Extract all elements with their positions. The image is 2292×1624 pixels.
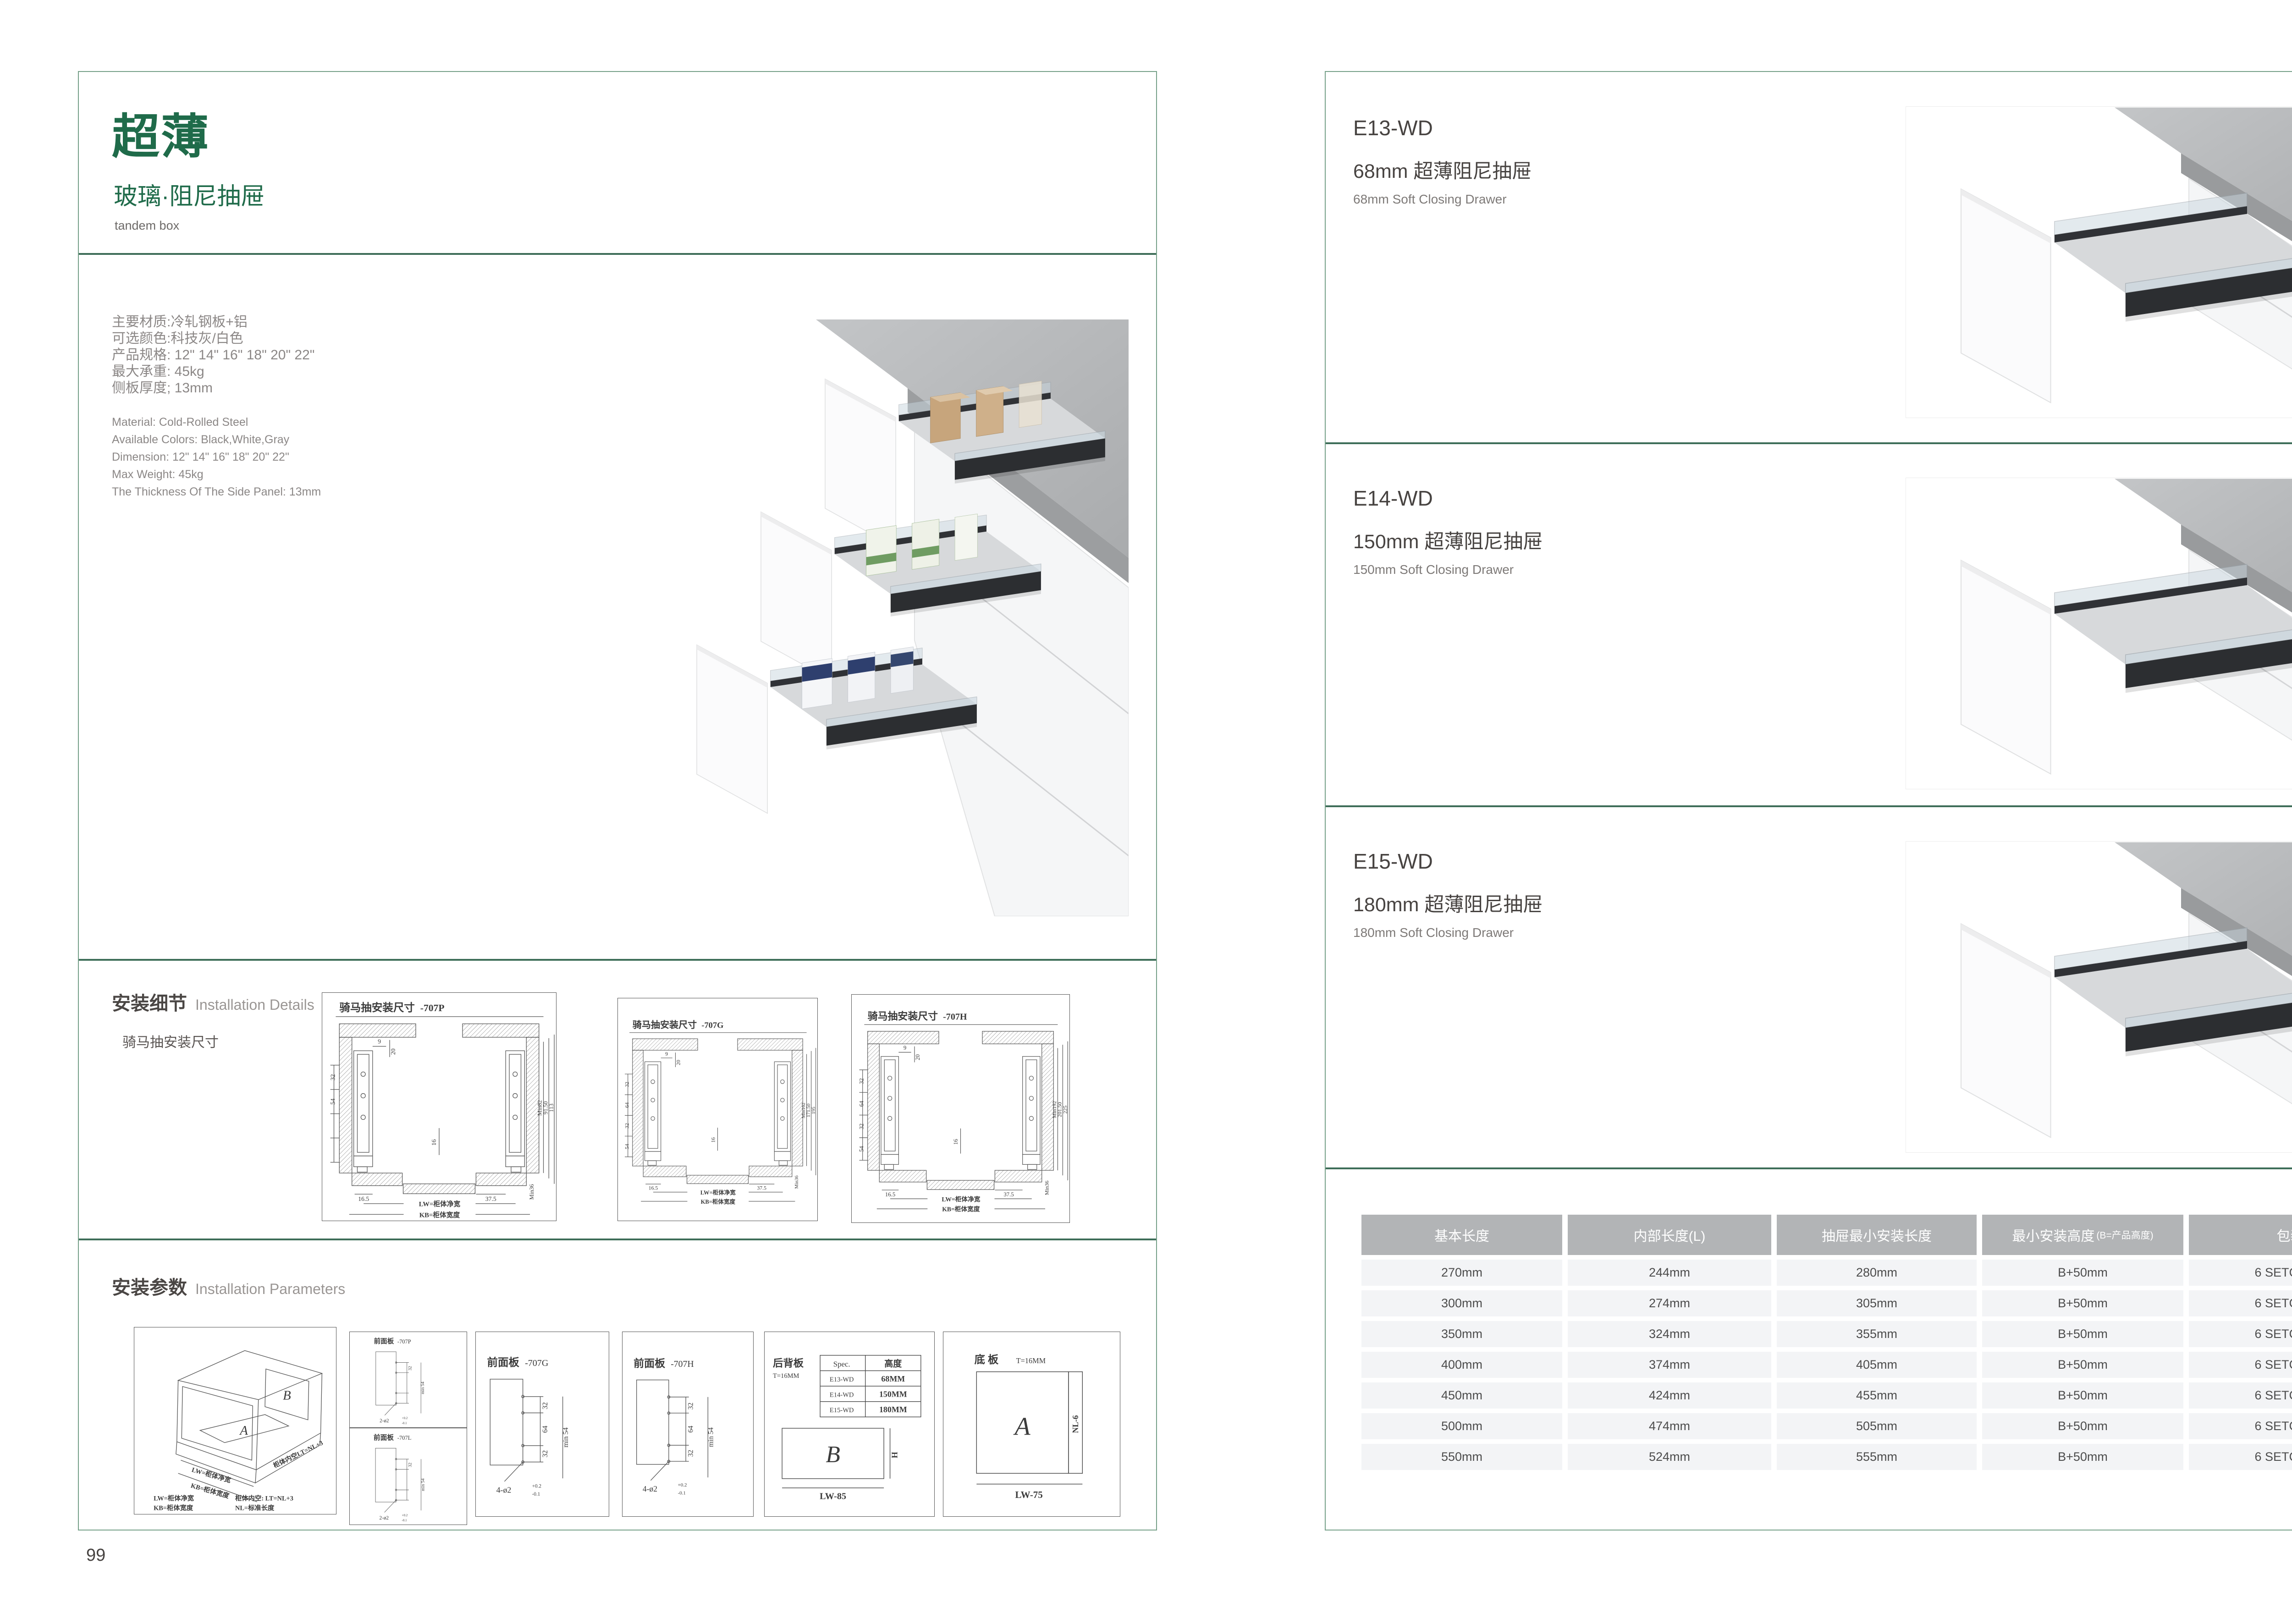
table-cell: B+50mm [1982, 1260, 2183, 1286]
specs-en: Material: Cold-Rolled Steel Available Co… [112, 413, 321, 501]
dim-label: 225 [1062, 1106, 1069, 1114]
legend-item: LW=柜体净宽 [154, 1494, 194, 1503]
install-drawing-707g: 骑马抽安装尺寸 -707G 9 20 32 64 32 54 16 Min162… [617, 998, 818, 1221]
product-name-zh-e13: 68mm 超薄阻尼抽屉 [1353, 155, 1532, 184]
dim-label: KB=柜体宽度 [701, 1198, 736, 1205]
dim-label: 64 [859, 1101, 865, 1107]
table-cell: B+50mm [1982, 1321, 2183, 1347]
panel-model: -707L [397, 1435, 412, 1441]
spec-line: Max Weight: 45kg [112, 466, 321, 483]
table-cell: 474mm [1568, 1413, 1771, 1439]
page-number-left: 99 [86, 1546, 105, 1565]
dim-label: 16 [430, 1139, 437, 1145]
divider [1326, 442, 2292, 444]
dim-label: 32 [329, 1074, 336, 1080]
front-panel-drawing-707g: 前面板 -707G 32 64 32 min 54 4-ø2 +0.2 -0.1 [475, 1332, 609, 1517]
col-header-label: 最小安装高度 [2012, 1225, 2094, 1245]
dim-label: 柜体内空LT=NL+3 [272, 1438, 324, 1470]
dim-label: 37.5 [1003, 1191, 1014, 1198]
table-cell: 6 SETC/TNB [2189, 1290, 2292, 1316]
height-cell: 150MM [879, 1390, 907, 1399]
product-photo-e15 [1906, 841, 2292, 1153]
spec-line: 主要材质:冷轧钢板+铝 [112, 314, 314, 330]
dim-label: 32 [541, 1402, 549, 1409]
col-header-label: 抽屉最小安装长度 [1822, 1225, 1932, 1245]
dim-label: 54 [624, 1144, 630, 1149]
product-name-zh-e14: 150mm 超薄阻尼抽屉 [1353, 526, 1543, 554]
front-panel-drawing-707h: 前面板 -707H 32 64 32 min 54 4-ø2 +0.2 -0.1 [622, 1332, 754, 1517]
table-cell: 280mm [1777, 1260, 1977, 1286]
dim-label: 16.5 [358, 1195, 369, 1202]
dim-label: 16 [953, 1139, 959, 1145]
dim-label: min 54 [562, 1427, 570, 1448]
panel-title: 前面板 [634, 1357, 666, 1369]
col-header-min-install-length: 抽屉最小安装长度 [1777, 1215, 1977, 1255]
dim-label: KB=柜体宽度 [190, 1481, 230, 1500]
table-cell: 6 SETC/TNB [2189, 1260, 2292, 1286]
side-dim-label: NL-6 [1071, 1415, 1080, 1433]
spec-line: 产品规格: 12" 14" 16" 18" 20" 22" [112, 347, 314, 363]
installation-parameters-title-zh: 安装参数 [112, 1277, 187, 1298]
product-title: 超薄 [112, 113, 210, 161]
product-name-zh-e15: 180mm 超薄阻尼抽屉 [1353, 889, 1543, 917]
table-cell: B+50mm [1982, 1352, 2183, 1378]
installation-parameters-title: 安装参数Installation Parameters [112, 1272, 345, 1299]
width-dim-label: LW-85 [820, 1492, 846, 1502]
dim-label: 54 [329, 1098, 336, 1105]
tolerance-bottom: -0.1 [532, 1492, 540, 1497]
legend-item: NL=标准长度 [235, 1504, 275, 1512]
dim-label: KB=柜体宽度 [419, 1211, 460, 1219]
dim-label: min 54 [421, 1478, 426, 1491]
col-header-label: 内部长度(L) [1634, 1225, 1706, 1245]
panel-title: 底 板 [975, 1353, 999, 1366]
product-name-en-e15: 180mm Soft Closing Drawer [1353, 925, 1514, 940]
panel-title: 前面板 [487, 1356, 520, 1369]
dim-label: 20 [676, 1060, 682, 1065]
table-cell: 555mm [1777, 1444, 1977, 1470]
table-cell: 274mm [1568, 1290, 1771, 1316]
table-cell: 324mm [1568, 1321, 1771, 1347]
install-drawing-707h: 骑马抽安装尺寸 -707H 9 20 32 64 32 54 16 Min192… [851, 994, 1070, 1223]
divider [1326, 805, 2292, 807]
spec-cell: E15-WD [830, 1407, 854, 1414]
panel-b-label: B [283, 1388, 291, 1403]
col-header-packing: 包装 [2189, 1215, 2292, 1255]
product-photo-main [541, 319, 1129, 916]
height-dim-label: H [890, 1452, 899, 1458]
bottom-panel-drawing: 底 板 T=16MM A NL-6 LW-75 [943, 1332, 1120, 1517]
dim-label: LW=柜体净宽 [942, 1195, 980, 1203]
page-left: 超薄 玻璃·阻尼抽屉 tandem box 主要材质:冷轧钢板+铝 可选颜色:科… [78, 71, 1157, 1530]
col-header-label: 包装 [2277, 1225, 2292, 1245]
table-cell: 270mm [1361, 1260, 1562, 1286]
panel-thickness: T=16MM [1016, 1356, 1046, 1365]
spec-col-header: Spec. [833, 1360, 850, 1368]
product-model-e15: E15-WD [1353, 849, 1433, 874]
cabinet-iso-drawing: A B LW=柜体净宽 KB=柜体宽度 柜体内空LT=NL+3 LW=柜体净宽 … [134, 1327, 336, 1514]
dim-label: 9 [904, 1045, 906, 1051]
spec-line: Available Colors: Black,White,Gray [112, 431, 321, 448]
tolerance-bottom: -0.1 [402, 1519, 408, 1522]
dim-label: LW=柜体净宽 [700, 1189, 736, 1196]
table-cell: 455mm [1777, 1382, 1977, 1409]
dim-label: 37.5 [485, 1195, 496, 1202]
spec-line: The Thickness Of The Side Panel: 13mm [112, 483, 321, 501]
dim-label: 64 [687, 1426, 694, 1433]
dim-label: 20 [915, 1054, 921, 1060]
dim-label: 32 [408, 1366, 413, 1371]
width-dim-label: LW-75 [1015, 1489, 1043, 1500]
panel-b-label: B [826, 1442, 840, 1468]
table-cell: 500mm [1361, 1413, 1562, 1439]
table-cell: 244mm [1568, 1260, 1771, 1286]
dim-label: 20 [390, 1048, 397, 1055]
table-cell: B+50mm [1982, 1290, 2183, 1316]
spec-line: 最大承重: 45kg [112, 363, 314, 380]
drawing-title: 骑马抽安装尺寸 [339, 1001, 415, 1014]
panel-title: 后背板 [773, 1357, 804, 1369]
dim-label: 113 [548, 1104, 555, 1112]
installation-details-title-zh: 安装细节 [112, 993, 187, 1014]
dim-label: 64 [541, 1426, 549, 1433]
product-name-en-e13: 68mm Soft Closing Drawer [1353, 192, 1507, 207]
table-cell: 6 SETC/TNB [2189, 1352, 2292, 1378]
spec-table: 基本长度 内部长度(L) 抽屉最小安装长度 最小安装高度(B=产品高度) 包装 … [1361, 1215, 2292, 1470]
product-photo-e14 [1906, 478, 2292, 789]
panel-a-label: A [239, 1423, 248, 1438]
spec-line: Material: Cold-Rolled Steel [112, 413, 321, 431]
table-cell: 300mm [1361, 1290, 1562, 1316]
spec-cell: E14-WD [830, 1392, 854, 1399]
dim-label: 9 [665, 1051, 668, 1057]
dim-label: min 54 [707, 1427, 715, 1447]
dim-label: Min36 [794, 1175, 799, 1189]
panel-title: 前面板 [374, 1337, 394, 1345]
spec-line: 侧板厚度; 13mm [112, 380, 314, 396]
dim-label: 32 [541, 1450, 549, 1458]
table-cell: 524mm [1568, 1444, 1771, 1470]
divider [79, 959, 1156, 961]
col-header-min-install-height: 最小安装高度(B=产品高度) [1982, 1215, 2183, 1255]
table-cell: 355mm [1777, 1321, 1977, 1347]
front-panel-drawing-707p: 前面板 -707P 32 min 54 2-ø2 +0.2 -0.1 [349, 1332, 467, 1428]
tolerance-top: +0.2 [678, 1482, 687, 1488]
installation-details-subtitle: 骑马抽安装尺寸 [122, 1031, 219, 1051]
spec-cell: E13-WD [830, 1376, 854, 1383]
tolerance-bottom: -0.1 [678, 1490, 686, 1496]
table-cell: B+50mm [1982, 1444, 2183, 1470]
tolerance-top: +0.2 [402, 1417, 408, 1420]
dim-label: 54 [859, 1146, 865, 1152]
dim-label: 9 [378, 1038, 381, 1045]
drawing-title: 骑马抽安装尺寸 [868, 1010, 938, 1022]
page-right: E13-WD 68mm 超薄阻尼抽屉 68mm Soft Closing Dra… [1325, 71, 2292, 1530]
table-cell: 405mm [1777, 1352, 1977, 1378]
product-model-e14: E14-WD [1353, 486, 1433, 511]
dim-label: 37.5 [757, 1185, 766, 1191]
table-cell: 6 SETC/TNB [2189, 1413, 2292, 1439]
dim-label: 16.5 [885, 1191, 895, 1198]
dim-label: 32 [687, 1403, 694, 1409]
dim-label: 32 [859, 1123, 865, 1129]
drawing-model: -707G [701, 1021, 723, 1030]
divider [79, 1239, 1156, 1240]
divider [1326, 1167, 2292, 1169]
holes-label: 2-ø2 [380, 1418, 389, 1424]
panel-a-label: A [1013, 1412, 1031, 1441]
installation-details-title: 安装细节Installation Details [112, 988, 314, 1015]
table-cell: 550mm [1361, 1444, 1562, 1470]
height-cell: 68MM [881, 1374, 905, 1383]
dim-label: min 54 [420, 1382, 425, 1394]
dim-label: 16 [711, 1137, 716, 1143]
col-header-label: 基本长度 [1434, 1225, 1489, 1245]
product-model-e13: E13-WD [1353, 116, 1433, 140]
legend-item: 柜体内空: LT=NL+3 [235, 1494, 293, 1503]
panel-model: -707G [525, 1358, 548, 1368]
dim-label: 16.5 [649, 1185, 658, 1191]
product-tagline: tandem box [115, 220, 179, 232]
height-cell: 180MM [879, 1405, 907, 1414]
back-panel-drawing: 后背板 T=16MM Spec. 高度 E13-WD 68MM E14-WD 1… [764, 1332, 935, 1517]
height-col-header: 高度 [884, 1358, 902, 1369]
table-cell: B+50mm [1982, 1413, 2183, 1439]
spec-line: Dimension: 12" 14" 16" 18" 20" 22" [112, 448, 321, 466]
col-header-inner-length: 内部长度(L) [1568, 1215, 1771, 1255]
catalog-spread: 超薄 玻璃·阻尼抽屉 tandem box 主要材质:冷轧钢板+铝 可选颜色:科… [0, 0, 2292, 1624]
holes-label: 4-ø2 [643, 1484, 657, 1493]
panel-model: -707H [671, 1359, 694, 1369]
panel-model: -707P [397, 1338, 411, 1345]
table-cell: B+50mm [1982, 1382, 2183, 1409]
dim-label: LW=柜体净宽 [191, 1465, 232, 1485]
specs-zh: 主要材质:冷轧钢板+铝 可选颜色:科技灰/白色 产品规格: 12" 14" 16… [112, 314, 314, 396]
dim-label: 32 [624, 1082, 630, 1087]
legend-item: KB=柜体宽度 [154, 1504, 193, 1512]
tolerance-top: +0.2 [532, 1483, 541, 1489]
drawing-model: -707H [943, 1012, 967, 1022]
table-cell: 6 SETC/TNB [2189, 1321, 2292, 1347]
panel-thickness: T=16MM [773, 1372, 799, 1380]
col-header-note: (B=产品高度) [2096, 1228, 2153, 1242]
table-cell: 400mm [1361, 1352, 1562, 1378]
spec-line: 可选颜色:科技灰/白色 [112, 330, 314, 347]
drawing-title: 骑马抽安装尺寸 [633, 1019, 697, 1030]
table-cell: 305mm [1777, 1290, 1977, 1316]
install-drawing-707p: 骑马抽安装尺寸 -707P 9 20 32 54 16 Min82 91.50 … [322, 992, 556, 1221]
divider [79, 253, 1156, 255]
front-panel-drawing-707l: 前面板 -707L 32 min 54 2-ø2 +0.2 -0.1 [349, 1428, 467, 1525]
dim-label: Min36 [529, 1184, 535, 1200]
table-cell: 505mm [1777, 1413, 1977, 1439]
product-subtitle: 玻璃·阻尼抽屉 [114, 185, 264, 209]
tolerance-top: +0.2 [402, 1514, 408, 1517]
dim-label: 32 [624, 1123, 630, 1129]
tolerance-bottom: -0.1 [402, 1422, 407, 1425]
col-header-basic-length: 基本长度 [1361, 1215, 1562, 1255]
installation-details-title-en: Installation Details [195, 996, 314, 1013]
panel-title: 前面板 [374, 1433, 394, 1442]
dim-label: KB=柜体宽度 [942, 1206, 980, 1213]
dim-label: 32 [408, 1463, 413, 1467]
table-cell: 424mm [1568, 1382, 1771, 1409]
dim-label: 32 [687, 1450, 694, 1457]
product-name-en-e14: 150mm Soft Closing Drawer [1353, 562, 1514, 577]
product-photo-e13 [1906, 106, 2292, 418]
table-cell: 6 SETC/TNB [2189, 1382, 2292, 1409]
dim-label: LW=柜体净宽 [419, 1200, 461, 1208]
table-cell: 6 SETC/TNB [2189, 1444, 2292, 1470]
table-cell: 374mm [1568, 1352, 1771, 1378]
holes-label: 2-ø2 [380, 1515, 389, 1521]
holes-label: 4-ø2 [496, 1485, 512, 1494]
dim-label: 32 [859, 1078, 865, 1084]
installation-parameters-title-en: Installation Parameters [195, 1281, 345, 1297]
dim-label: 64 [624, 1102, 630, 1108]
dim-label: Min36 [1043, 1181, 1050, 1195]
drawing-model: -707P [420, 1002, 445, 1013]
table-cell: 350mm [1361, 1321, 1562, 1347]
table-cell: 450mm [1361, 1382, 1562, 1409]
dim-label: 195 [811, 1107, 816, 1114]
